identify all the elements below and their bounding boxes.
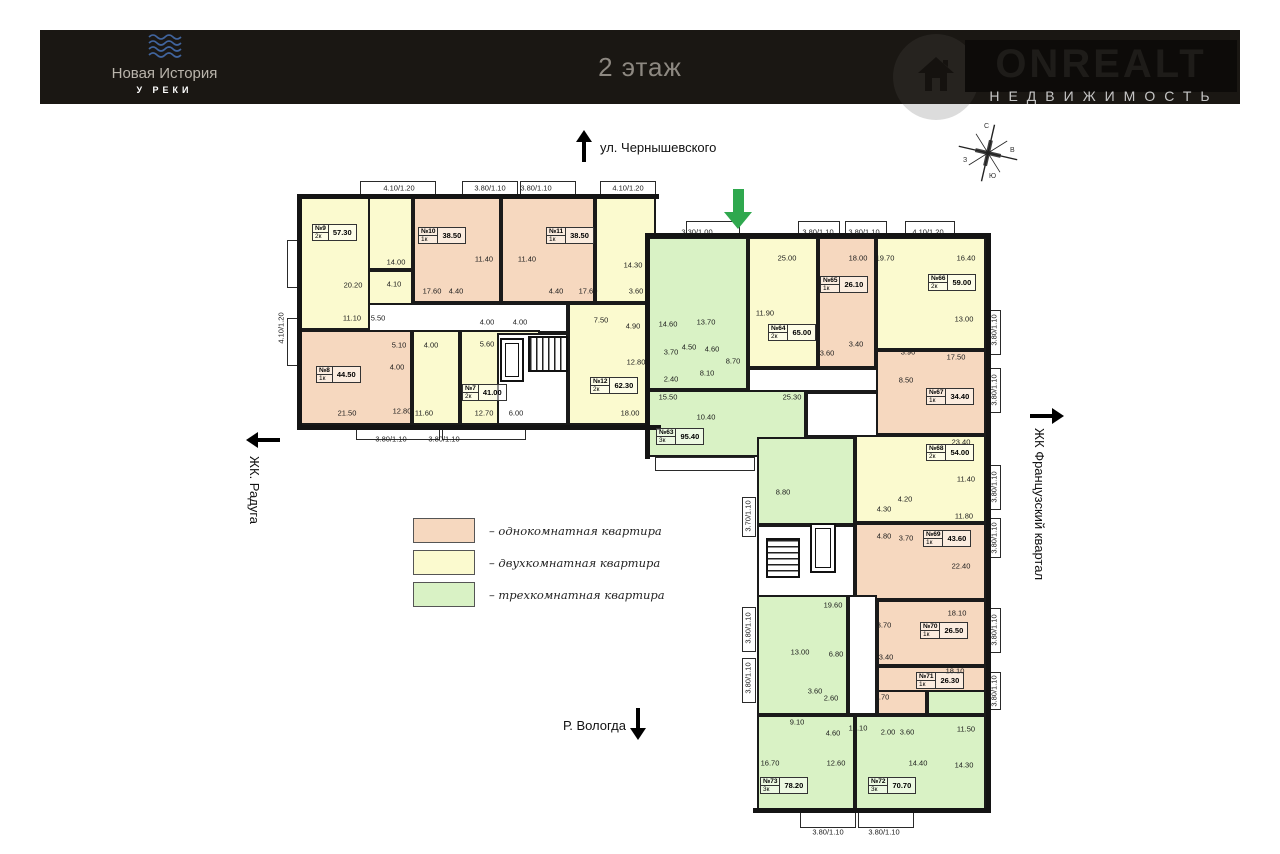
right-neighbor-label: ЖК Французский квартал — [1032, 428, 1047, 580]
apartment-number: №64 — [769, 325, 787, 333]
elevator — [810, 523, 836, 573]
dimension-label: 19.60 — [824, 601, 843, 610]
room — [748, 368, 878, 392]
dimension-label: 4.00 — [390, 363, 405, 372]
dimension-label: 6.80 — [829, 650, 844, 659]
dimension-label: 3.80/1.10 — [990, 471, 999, 502]
dimension-label: 3.60 — [900, 728, 915, 737]
apartment-area: 78.20 — [780, 778, 807, 793]
dimension-label: 10.10 — [849, 724, 868, 733]
page: Новая История У РЕКИ 2 этаж ONREALT НЕДВ… — [0, 0, 1280, 854]
apartment-tag: №662к59.00 — [928, 274, 976, 291]
dimension-label: 4.30 — [877, 505, 892, 514]
stairs — [528, 336, 568, 372]
dimension-label: 3.60 — [820, 349, 835, 358]
dimension-label: 12.60 — [827, 759, 846, 768]
apartment-area: 34.40 — [946, 389, 973, 404]
room — [648, 237, 748, 390]
apartment-area: 41.00 — [479, 385, 506, 400]
right-arrow-icon — [1030, 408, 1064, 424]
apartment-type: 1к — [547, 236, 565, 243]
apartment-number: №65 — [821, 277, 839, 285]
dimension-label: 11.80 — [955, 512, 973, 521]
apartment-type: 2к — [463, 393, 478, 400]
compass-n: С — [984, 123, 989, 130]
street-label: ул. Чернышевского — [600, 140, 716, 155]
dimension-label: 3.40 — [849, 340, 864, 349]
river-arrow-icon — [630, 708, 646, 740]
dimension-label: 4.40 — [449, 287, 464, 296]
dimension-label: 4.20 — [898, 495, 913, 504]
apartment-type: 2к — [313, 233, 328, 240]
room — [927, 690, 986, 715]
dimension-label: 7.50 — [594, 316, 609, 325]
apartment-tag: №111к38.50 — [546, 227, 594, 244]
apartment-area: 62.30 — [610, 378, 637, 393]
apartment-area: 95.40 — [676, 429, 703, 444]
apartment-number: №9 — [313, 225, 328, 233]
wall — [297, 425, 661, 430]
dimension-label: 3.70 — [877, 621, 892, 630]
dimension-label: 3.80/1.10 — [802, 228, 833, 237]
left-neighbor-label: ЖК. Радуга — [247, 456, 262, 524]
legend-label: – однокомнатная квартира — [489, 524, 662, 538]
dimension-label: 4.90 — [626, 322, 641, 331]
dimension-label: 22.40 — [952, 562, 971, 571]
apartment-type: 1к — [821, 285, 839, 292]
dimension-label: 3.80/1.10 — [990, 374, 999, 405]
dimension-label: 3.80/1.10 — [990, 314, 999, 345]
dimension-label: 16.70 — [761, 759, 780, 768]
apartment-number: №69 — [924, 531, 942, 539]
apartment-area: 44.50 — [333, 367, 360, 382]
dimension-label: 8.50 — [899, 376, 914, 385]
room — [368, 303, 568, 333]
balcony — [800, 812, 856, 828]
dimension-label: 2.60 — [824, 694, 839, 703]
dimension-label: 25.30 — [783, 393, 802, 402]
dimension-label: 3.80/1.10 — [812, 828, 843, 837]
dimension-label: 3.80/1.10 — [744, 612, 753, 643]
apartment-tag: №671к34.40 — [926, 388, 974, 405]
apartment-tag: №92к57.30 — [312, 224, 357, 241]
dimension-label: 11.50 — [957, 725, 975, 734]
dimension-label: 3.40 — [879, 653, 894, 662]
dimension-label: 2.00 — [881, 728, 896, 737]
apartment-number: №72 — [869, 778, 887, 786]
room — [806, 392, 878, 437]
apartment-area: 26.50 — [940, 623, 967, 638]
apartment-area: 57.30 — [329, 225, 356, 240]
dimension-label: 25.00 — [778, 254, 797, 263]
dimension-label: 14.40 — [909, 759, 928, 768]
apartment-area: 26.10 — [840, 277, 867, 292]
legend-item: – двухкомнатная квартира — [413, 550, 665, 575]
legend-swatch — [413, 518, 475, 543]
dimension-label: 16.40 — [957, 254, 976, 263]
apartment-number: №67 — [927, 389, 945, 397]
room — [848, 595, 877, 715]
apartment-tag: №651к26.10 — [820, 276, 868, 293]
dimension-label: 18.00 — [849, 254, 868, 263]
dimension-label: 4.40 — [549, 287, 564, 296]
elevator — [500, 338, 524, 382]
apartment-type: 2к — [591, 386, 609, 393]
dimension-label: 4.10/1.20 — [912, 228, 943, 237]
brand-tagline: НЕДВИЖИМОСТЬ — [970, 88, 1238, 104]
apartment-number: №11 — [547, 228, 565, 236]
wall — [297, 194, 659, 199]
wall — [753, 808, 991, 813]
wall — [645, 233, 650, 459]
dimension-label: 3.80/1.10 — [744, 662, 753, 693]
apartment-type: 1к — [917, 681, 935, 688]
dimension-label: 3.80/1.10 — [990, 614, 999, 645]
dimension-label: 12.80 — [627, 358, 646, 367]
dimension-label: 8.70 — [726, 357, 741, 366]
compass-e: В — [1010, 147, 1015, 154]
dimension-label: 13.70 — [697, 318, 716, 327]
apartment-tag: №733к78.20 — [760, 777, 808, 794]
dimension-label: 3.80/1.10 — [848, 228, 879, 237]
dimension-label: 4.80 — [877, 532, 892, 541]
legend-item: – однокомнатная квартира — [413, 518, 665, 543]
dimension-label: 15.50 — [659, 393, 678, 402]
dimension-label: 3.70 — [875, 693, 890, 702]
entrance-arrow-icon — [724, 189, 752, 229]
legend-item: – трехкомнатная квартира — [413, 582, 665, 607]
river-label: Р. Вологда — [563, 718, 626, 733]
dimension-label: 2.40 — [664, 375, 679, 384]
dimension-label: 17.50 — [947, 353, 966, 362]
legend-swatch — [413, 582, 475, 607]
dimension-label: 4.00 — [513, 318, 528, 327]
apartment-area: 38.50 — [438, 228, 465, 243]
legend-label: – двухкомнатная квартира — [489, 556, 660, 570]
dimension-label: 13.00 — [955, 315, 974, 324]
house-icon — [914, 52, 958, 96]
apartment-tag: №723к70.70 — [868, 777, 916, 794]
dimension-label: 3.80/1.10 — [990, 522, 999, 553]
dimension-label: 14.00 — [387, 258, 406, 267]
dimension-label: 14.30 — [955, 761, 974, 770]
apartment-tag: №101к38.50 — [418, 227, 466, 244]
dimension-label: 3.80/1.10 — [474, 184, 505, 193]
dimension-label: 4.10/1.20 — [383, 184, 414, 193]
apartment-type: 2к — [929, 283, 947, 290]
apartment-tag: №691к43.60 — [923, 530, 971, 547]
apartment-area: 65.00 — [788, 325, 815, 340]
apartment-type: 1к — [317, 375, 332, 382]
apartment-tag: №72к41.00 — [462, 384, 507, 401]
dimension-label: 4.10 — [387, 280, 402, 289]
dimension-label: 11.40 — [475, 255, 493, 264]
dimension-label: 3.30/1.00 — [681, 228, 712, 237]
dimension-label: 5.50 — [371, 314, 386, 323]
dimension-label: 4.60 — [705, 345, 720, 354]
dimension-label: 14.30 — [624, 261, 643, 270]
dimension-label: 3.80/1.10 — [868, 828, 899, 837]
apartment-type: 1к — [924, 539, 942, 546]
dimension-label: 18.00 — [621, 409, 640, 418]
apartment-tag: №711к26.30 — [916, 672, 964, 689]
apartment-type: 1к — [927, 397, 945, 404]
apartment-number: №68 — [927, 445, 945, 453]
apartment-area: 26.30 — [936, 673, 963, 688]
apartment-type: 2к — [769, 333, 787, 340]
apartment-tag: №682к54.00 — [926, 444, 974, 461]
compass-s: Ю — [989, 173, 996, 180]
header-bar: Новая История У РЕКИ 2 этаж ONREALT НЕДВ… — [40, 30, 1240, 104]
dimension-label: 3.80/1.10 — [990, 675, 999, 706]
dimension-label: 11.40 — [518, 255, 536, 264]
apartment-number: №8 — [317, 367, 332, 375]
stairs — [766, 538, 800, 578]
dimension-label: 3.70 — [664, 348, 679, 357]
apartment-number: №7 — [463, 385, 478, 393]
dimension-label: 3.80/1.10 — [520, 184, 551, 193]
dimension-label: 18.10 — [948, 609, 967, 618]
dimension-label: 3.70/1.10 — [744, 500, 753, 531]
legend-swatch — [413, 550, 475, 575]
dimension-label: 5.60 — [480, 340, 495, 349]
dimension-label: 8.10 — [700, 369, 715, 378]
dimension-label: 8.80 — [776, 488, 791, 497]
wall — [297, 194, 302, 430]
dimension-label: 4.00 — [424, 341, 439, 350]
wall — [986, 233, 991, 678]
dimension-label: 19.70 — [876, 254, 895, 263]
apartment-number: №63 — [657, 429, 675, 437]
apartment-tag: №642к65.00 — [768, 324, 816, 341]
apartment-number: №71 — [917, 673, 935, 681]
dimension-label: 11.90 — [756, 309, 774, 318]
developer-subtitle: У РЕКИ — [82, 85, 247, 95]
apartment-tag: №701к26.50 — [920, 622, 968, 639]
apartment-tag: №122к62.30 — [590, 377, 638, 394]
legend: – однокомнатная квартира– двухкомнатная … — [413, 518, 665, 607]
dimension-label: 3.80/1.10 — [428, 435, 459, 444]
dimension-label: 20.20 — [344, 281, 363, 290]
apartment-number: №10 — [419, 228, 437, 236]
apartment-type: 3к — [869, 786, 887, 793]
dimension-label: 21.50 — [338, 409, 357, 418]
dimension-label: 4.00 — [480, 318, 495, 327]
apartment-type: 1к — [921, 631, 939, 638]
apartment-area: 38.50 — [566, 228, 593, 243]
dimension-label: 3.90 — [901, 348, 916, 357]
apartment-number: №12 — [591, 378, 609, 386]
street-arrow-icon — [576, 130, 592, 162]
apartment-area: 43.60 — [943, 531, 970, 546]
dimension-label: 13.00 — [791, 648, 810, 657]
apartment-type: 3к — [657, 437, 675, 444]
apartment-tag: №81к44.50 — [316, 366, 361, 383]
compass-w: З — [963, 157, 967, 164]
legend-label: – трехкомнатная квартира — [489, 588, 665, 602]
apartment-number: №70 — [921, 623, 939, 631]
dimension-label: 3.70 — [899, 534, 914, 543]
dimension-label: 4.60 — [826, 729, 841, 738]
apartment-type: 3к — [761, 786, 779, 793]
dimension-label: 3.80/1.10 — [375, 435, 406, 444]
left-arrow-icon — [246, 432, 280, 448]
room — [757, 437, 855, 525]
dimension-label: 12.80 — [393, 407, 412, 416]
dimension-label: 6.00 — [509, 409, 524, 418]
apartment-number: №66 — [929, 275, 947, 283]
dimension-label: 12.70 — [475, 409, 494, 418]
dimension-label: 11.10 — [343, 314, 361, 323]
dimension-label: 14.60 — [659, 320, 678, 329]
apartment-area: 59.00 — [948, 275, 975, 290]
dimension-label: 4.10/1.20 — [612, 184, 643, 193]
apartment-tag: №633к95.40 — [656, 428, 704, 445]
dimension-label: 5.10 — [392, 341, 407, 350]
dimension-label: 17.60 — [579, 287, 598, 296]
apartment-type: 1к — [419, 236, 437, 243]
dimension-label: 4.50 — [682, 343, 697, 352]
dimension-label: 4.10/1.20 — [277, 312, 286, 343]
dimension-label: 11.60 — [415, 409, 433, 418]
balcony — [655, 457, 755, 471]
dimension-label: 17.60 — [423, 287, 442, 296]
apartment-area: 70.70 — [888, 778, 915, 793]
brand-name: ONREALT — [965, 42, 1237, 87]
apartment-number: №73 — [761, 778, 779, 786]
dimension-label: 3.60 — [629, 287, 644, 296]
compass-icon: С В Ю З — [950, 118, 1030, 188]
dimension-label: 3.60 — [808, 687, 823, 696]
apartment-area: 54.00 — [946, 445, 973, 460]
apartment-type: 2к — [927, 453, 945, 460]
dimension-label: 9.10 — [790, 718, 805, 727]
dimension-label: 11.40 — [957, 475, 975, 484]
balcony — [858, 812, 914, 828]
dimension-label: 10.40 — [697, 413, 716, 422]
